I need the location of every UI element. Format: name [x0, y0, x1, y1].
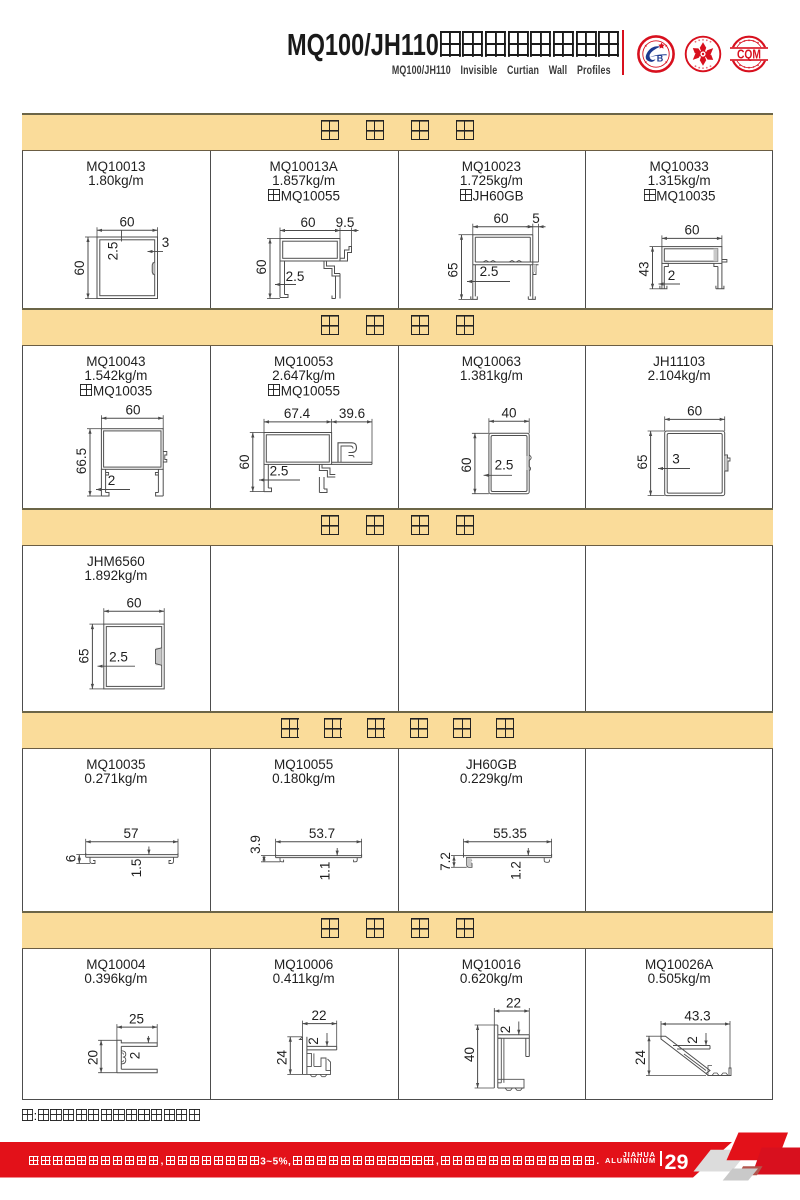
svg-text:60: 60 — [72, 260, 87, 275]
svg-text:39.6: 39.6 — [339, 406, 365, 421]
svg-text:3: 3 — [672, 452, 680, 467]
svg-text:2.5: 2.5 — [270, 464, 289, 479]
svg-text:43.3: 43.3 — [684, 1008, 710, 1023]
svg-text:7.2: 7.2 — [438, 852, 453, 871]
svg-text:2.5: 2.5 — [480, 264, 499, 279]
svg-text:24: 24 — [275, 1050, 290, 1066]
svg-text:1.2: 1.2 — [509, 861, 524, 880]
svg-text:22: 22 — [506, 995, 521, 1010]
svg-text:2: 2 — [306, 1037, 321, 1045]
svg-text:40: 40 — [501, 406, 516, 421]
svg-text:1.5: 1.5 — [129, 859, 144, 878]
svg-text:66.5: 66.5 — [74, 448, 89, 474]
svg-text:20: 20 — [85, 1050, 100, 1065]
svg-text:2: 2 — [128, 1052, 143, 1060]
svg-text:60: 60 — [459, 457, 474, 472]
svg-text:65: 65 — [446, 262, 461, 277]
svg-text:25: 25 — [129, 1011, 144, 1026]
svg-text:60: 60 — [125, 403, 140, 418]
svg-text:65: 65 — [635, 454, 650, 469]
svg-text:22: 22 — [311, 1008, 326, 1023]
svg-text:57: 57 — [123, 826, 138, 841]
svg-text:60: 60 — [300, 215, 315, 230]
svg-text:24: 24 — [633, 1050, 648, 1066]
svg-text:2: 2 — [498, 1026, 513, 1034]
svg-text:2.5: 2.5 — [286, 269, 305, 284]
svg-text:60: 60 — [684, 223, 699, 238]
svg-text:43: 43 — [637, 261, 652, 276]
svg-text:1.1: 1.1 — [318, 862, 333, 881]
svg-text:60: 60 — [493, 211, 508, 226]
svg-text:3: 3 — [162, 235, 170, 250]
svg-text:5: 5 — [532, 211, 540, 226]
svg-text:2.5: 2.5 — [109, 650, 128, 665]
svg-text:67.4: 67.4 — [284, 406, 311, 421]
svg-text:53.7: 53.7 — [309, 826, 335, 841]
svg-text:60: 60 — [237, 454, 252, 469]
svg-text:2: 2 — [108, 473, 116, 488]
svg-text:2: 2 — [668, 268, 676, 283]
svg-text:2.5: 2.5 — [495, 458, 514, 473]
svg-text:6: 6 — [64, 855, 79, 863]
svg-text:60: 60 — [119, 215, 134, 230]
svg-text:2: 2 — [685, 1036, 700, 1044]
svg-text:3.9: 3.9 — [248, 835, 263, 854]
svg-text:60: 60 — [687, 404, 702, 419]
svg-text:60: 60 — [254, 259, 269, 274]
svg-text:55.35: 55.35 — [493, 826, 527, 841]
svg-text:65: 65 — [77, 648, 92, 663]
svg-text:9.5: 9.5 — [336, 215, 355, 230]
svg-text:60: 60 — [126, 596, 141, 611]
svg-text:40: 40 — [462, 1047, 477, 1062]
svg-text:2.5: 2.5 — [106, 242, 121, 261]
